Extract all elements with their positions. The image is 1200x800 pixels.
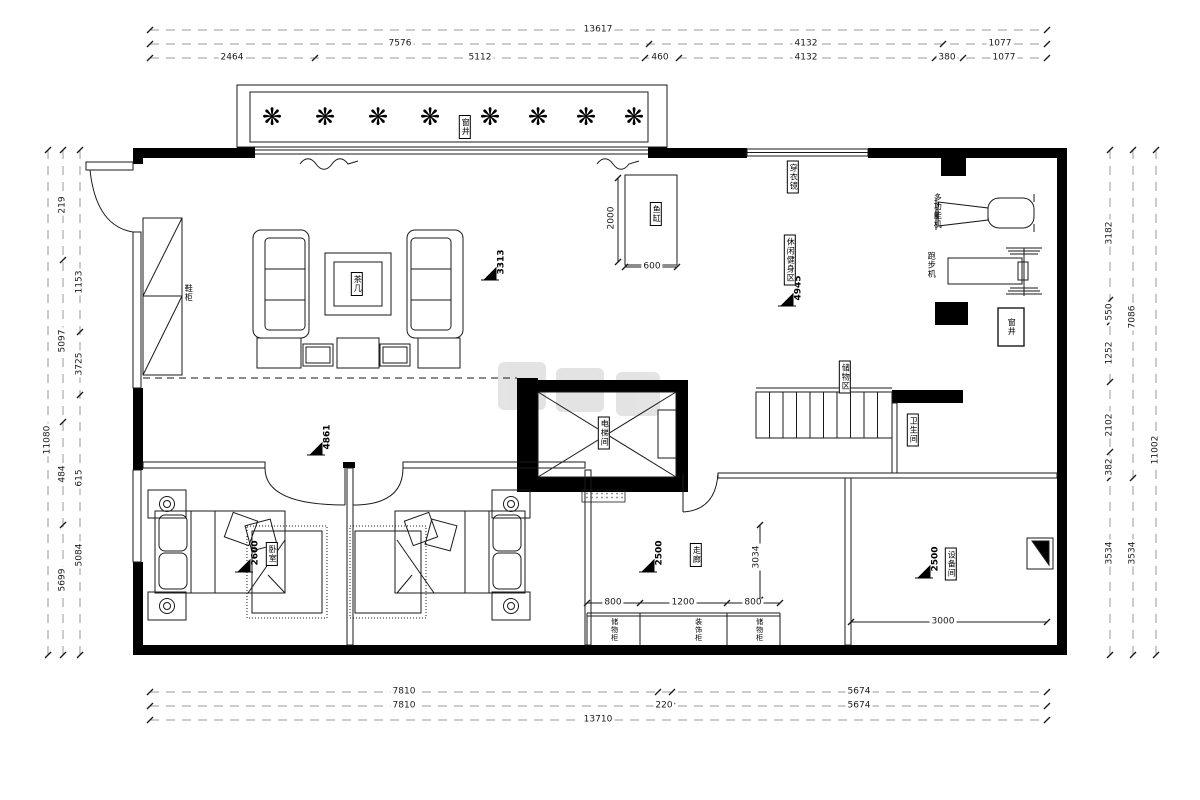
fish-tank bbox=[615, 175, 680, 270]
dim-tank-height: 2000 bbox=[608, 205, 617, 232]
plant-icon: ❋ bbox=[576, 105, 596, 129]
dim-left: 5097 bbox=[59, 328, 68, 355]
level-hall: 4861 bbox=[324, 424, 333, 449]
dim-bottom: 5674 bbox=[846, 702, 873, 711]
plant-icon: ❋ bbox=[480, 105, 500, 129]
floorplan-canvas: 13617 7576 4132 1077 2464 5112 460 4132 … bbox=[0, 0, 1200, 800]
dim-left: 484 bbox=[59, 463, 68, 484]
dim-right: 3534 bbox=[1106, 540, 1115, 567]
dim-left: 615 bbox=[76, 467, 85, 488]
sofa-right bbox=[407, 230, 463, 338]
dim-top: 1077 bbox=[987, 40, 1014, 49]
label-equipment-room: 设备间 bbox=[945, 548, 957, 581]
label-window-well-right: 窗井 bbox=[1007, 318, 1015, 336]
multi-function-machine bbox=[936, 194, 1034, 232]
dim-cabinet: 800 bbox=[742, 599, 763, 608]
gym-door bbox=[683, 473, 718, 512]
dim-top: 4132 bbox=[793, 54, 820, 63]
dim-top: 5112 bbox=[467, 54, 494, 63]
plant-icon: ❋ bbox=[368, 105, 388, 129]
stairs bbox=[756, 388, 892, 438]
dim-corridor-width: 3034 bbox=[753, 544, 762, 571]
label-treadmill: 跑步机 bbox=[927, 252, 935, 279]
sofa-left bbox=[253, 230, 309, 338]
level-corridor: 2500 bbox=[656, 540, 665, 565]
dim-left-total: 11080 bbox=[44, 424, 53, 457]
dim-right: 1252 bbox=[1106, 340, 1115, 367]
plant-icon: ❋ bbox=[624, 105, 644, 129]
level-living: 3313 bbox=[498, 249, 507, 274]
dim-bottom: 5674 bbox=[846, 688, 873, 697]
label-tea-table: 茶几 bbox=[351, 272, 363, 296]
dim-top: 7576 bbox=[387, 40, 414, 49]
dim-right: 2102 bbox=[1106, 412, 1115, 439]
plant-icon: ❋ bbox=[420, 105, 440, 129]
dim-cabinet: 1200 bbox=[670, 599, 697, 608]
dim-top: 380 bbox=[936, 54, 957, 63]
label-bedroom: 卧室 bbox=[266, 542, 278, 566]
label-shoe-cabinet: 鞋柜 bbox=[184, 284, 192, 302]
dim-top: 4132 bbox=[793, 40, 820, 49]
dim-bottom-total: 13710 bbox=[582, 716, 615, 725]
dim-left: 219 bbox=[59, 194, 68, 215]
plant-icon: ❋ bbox=[528, 105, 548, 129]
label-elevator: 电梯间 bbox=[598, 417, 610, 450]
entry-door bbox=[86, 162, 133, 232]
dim-right: 382 bbox=[1106, 456, 1115, 477]
dim-left: 1153 bbox=[76, 269, 85, 296]
label-fitness-area: 休闲健身区 bbox=[784, 235, 796, 286]
level-bedroom: 2600 bbox=[252, 540, 261, 565]
stool-row bbox=[257, 338, 460, 368]
dim-right: 550 bbox=[1106, 301, 1115, 322]
dim-left: 3725 bbox=[76, 351, 85, 378]
dim-cabinet: 800 bbox=[602, 599, 623, 608]
dim-right: 7086 bbox=[1129, 304, 1138, 331]
dim-bottom: 220 bbox=[653, 702, 674, 711]
dim-bottom: 7810 bbox=[391, 688, 418, 697]
bedroom2-door bbox=[353, 468, 403, 505]
dim-right: 3182 bbox=[1106, 220, 1115, 247]
level-equipment: 2500 bbox=[932, 546, 941, 571]
label-fish-tank: 鱼缸 bbox=[650, 202, 662, 226]
label-cabinet-right: 储物柜 bbox=[755, 618, 762, 642]
shoe-cabinet bbox=[143, 218, 182, 375]
plant-icon: ❋ bbox=[262, 105, 282, 129]
treadmill bbox=[948, 248, 1042, 296]
label-dressing-mirror: 穿衣镜 bbox=[787, 161, 799, 194]
dim-top: 2464 bbox=[219, 54, 246, 63]
dim-top: 460 bbox=[649, 54, 670, 63]
label-bathroom: 卫生间 bbox=[907, 414, 919, 447]
dim-left: 5699 bbox=[59, 567, 68, 594]
label-window-well-top: 窗井 bbox=[459, 115, 471, 139]
plant-icon: ❋ bbox=[315, 105, 335, 129]
label-multi-machine: 多功能机 bbox=[933, 193, 941, 229]
dim-bottom: 7810 bbox=[391, 702, 418, 711]
dim-left: 5084 bbox=[76, 542, 85, 569]
dim-right: 3534 bbox=[1129, 540, 1138, 567]
label-cabinet-left: 储物柜 bbox=[610, 618, 617, 642]
bedroom1-furniture bbox=[148, 490, 327, 620]
dim-right-total: 11002 bbox=[1152, 434, 1161, 467]
label-storage-area: 储物区 bbox=[839, 361, 851, 394]
window-squiggle bbox=[597, 159, 639, 170]
bedroom2-furniture bbox=[350, 490, 530, 620]
window-squiggle bbox=[300, 159, 358, 170]
dim-equipment-width: 3000 bbox=[930, 618, 957, 627]
bedroom1-door bbox=[265, 468, 345, 505]
balcony-window-well bbox=[237, 85, 667, 169]
dim-tank-width: 600 bbox=[641, 263, 662, 272]
label-cabinet-mid: 装饰柜 bbox=[694, 618, 701, 642]
floorplan-drawing bbox=[0, 0, 1200, 800]
dim-top: 1077 bbox=[991, 54, 1018, 63]
dim-top-total: 13617 bbox=[582, 26, 615, 35]
label-corridor: 走廊 bbox=[690, 543, 702, 567]
